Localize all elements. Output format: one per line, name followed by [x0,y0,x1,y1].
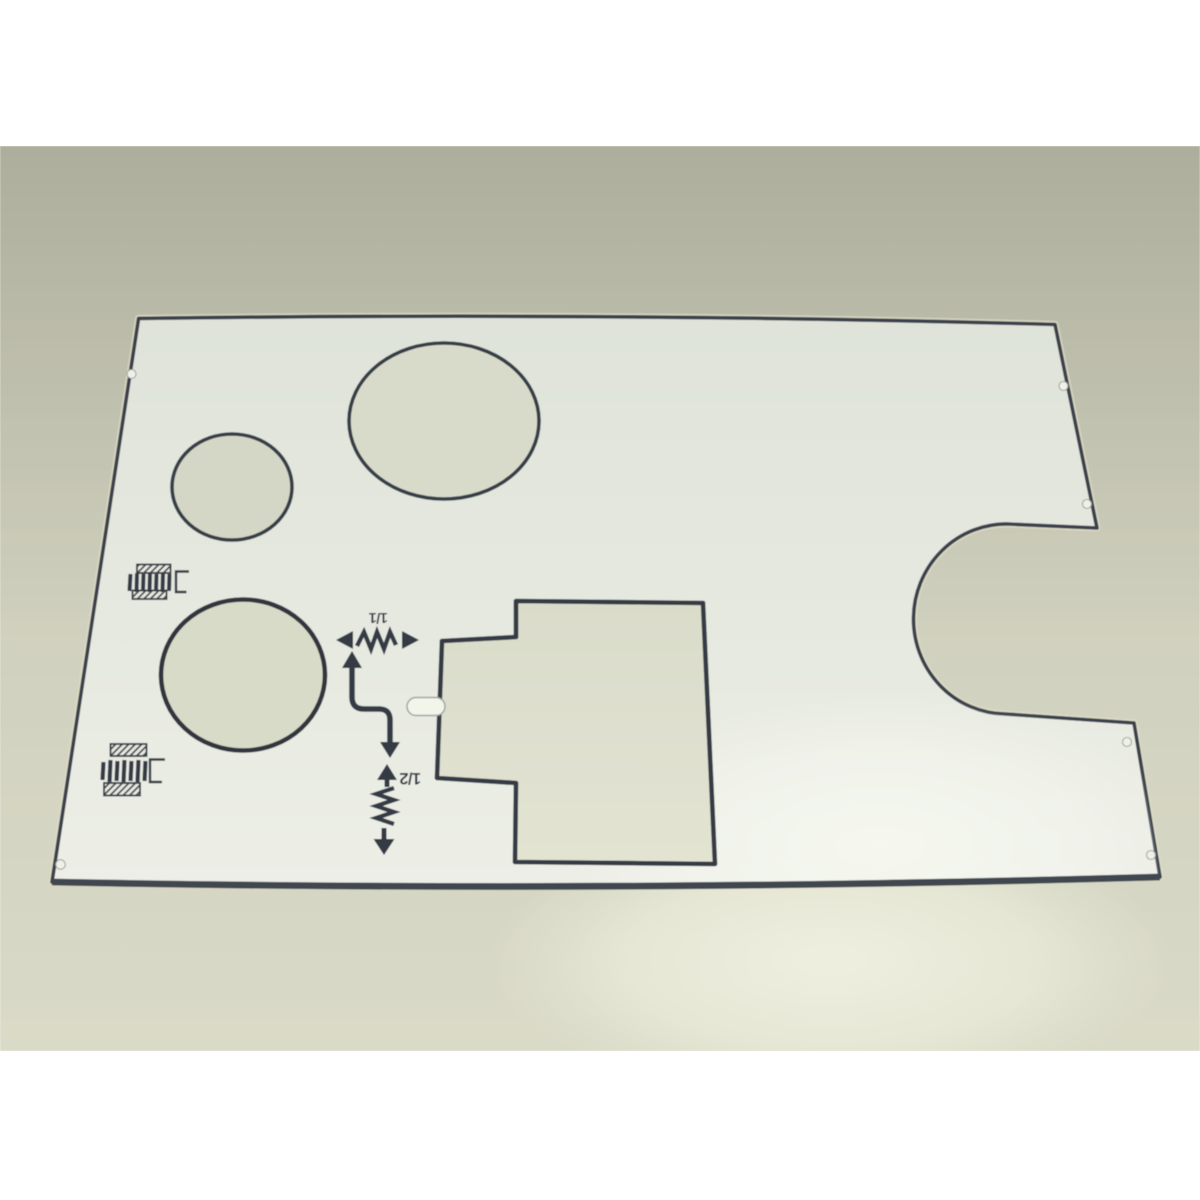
svg-text:1/1: 1/1 [369,609,388,625]
svg-text:1/2: 1/2 [400,769,422,787]
